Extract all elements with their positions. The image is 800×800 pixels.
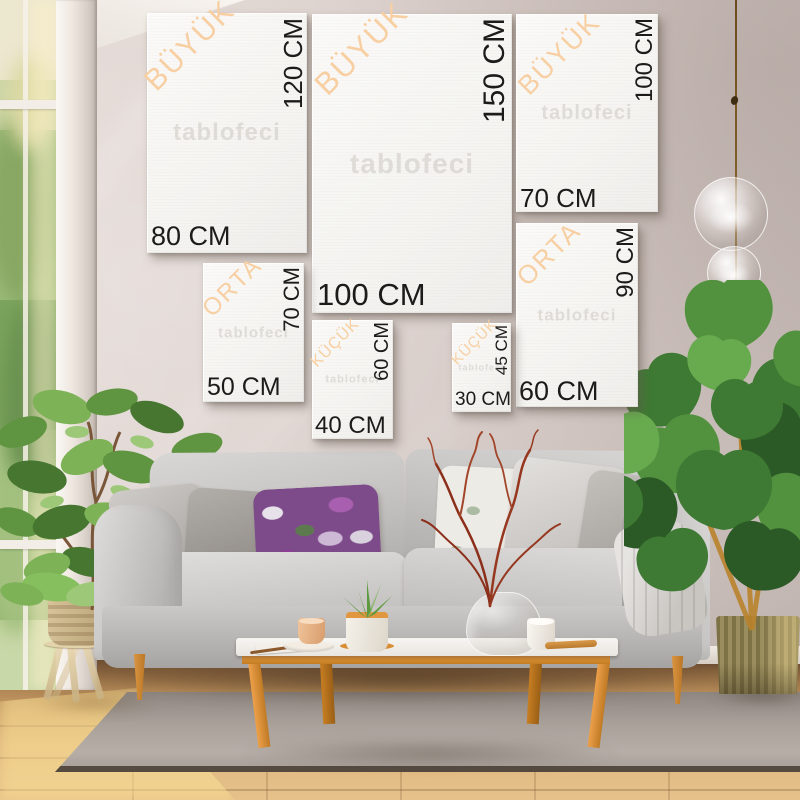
height-dimension-label: 150 CM bbox=[480, 18, 510, 123]
coffee-table bbox=[234, 636, 624, 748]
succulent-leaves bbox=[342, 580, 392, 618]
size-category-label: BÜYÜK bbox=[309, 0, 414, 100]
succulent-plant bbox=[336, 580, 398, 620]
watermark: tablofeci bbox=[538, 307, 617, 324]
width-dimension-label: 100 CM bbox=[317, 279, 426, 310]
table-leg-front-left bbox=[248, 661, 270, 748]
glass-reflection bbox=[707, 200, 755, 235]
table-leg-front-right bbox=[588, 661, 610, 748]
height-dimension-label: 70 CM bbox=[281, 267, 303, 332]
watermark: tablofeci bbox=[541, 103, 632, 123]
watermark: tablofeci bbox=[218, 325, 289, 340]
glass-pendant-large bbox=[694, 177, 768, 251]
table-leg-back-left bbox=[320, 662, 335, 725]
canvas-frame-70x50: ORTA 70 CM 50 CM tablofeci bbox=[203, 263, 304, 402]
width-dimension-label: 60 CM bbox=[519, 378, 599, 405]
size-category-label: KÜÇÜK bbox=[308, 316, 362, 370]
table-apron bbox=[242, 655, 610, 664]
width-dimension-label: 50 CM bbox=[207, 375, 281, 400]
monstera-plant bbox=[624, 280, 800, 640]
size-category-label: ORTA bbox=[512, 217, 585, 290]
watermark: tablofeci bbox=[325, 374, 379, 385]
canvas-frame-45x30: KÜÇÜK 45 CM 30 CM tablofeci bbox=[452, 323, 511, 412]
height-dimension-label: 90 CM bbox=[614, 227, 638, 298]
width-dimension-label: 80 CM bbox=[151, 223, 231, 250]
canvas-frame-120x80: BÜYÜK 120 CM 80 CM tablofeci bbox=[147, 13, 307, 253]
width-dimension-label: 30 CM bbox=[455, 390, 511, 409]
window-mullion bbox=[0, 100, 58, 109]
watermark: tablofeci bbox=[458, 363, 504, 372]
canvas-frame-150x100: BÜYÜK 150 CM 100 CM tablofeci bbox=[312, 14, 512, 313]
watermark: tablofeci bbox=[173, 121, 281, 145]
size-category-label: BÜYÜK bbox=[513, 8, 605, 100]
rug-edge bbox=[55, 766, 800, 772]
canvas-frame-100x70: BÜYÜK 100 CM 70 CM tablofeci bbox=[516, 14, 658, 212]
canvas-frame-90x60: ORTA 90 CM 60 CM tablofeci bbox=[516, 223, 638, 407]
branch-stems bbox=[422, 430, 560, 606]
canvas-frame-60x40: KÜÇÜK 60 CM 40 CM tablofeci bbox=[312, 320, 393, 439]
coffee-cup-left bbox=[298, 618, 325, 644]
size-category-label: ORTA bbox=[199, 253, 267, 321]
width-dimension-label: 40 CM bbox=[315, 414, 386, 438]
size-category-label: BÜYÜK bbox=[139, 0, 240, 97]
monstera-foliage bbox=[624, 280, 800, 630]
height-dimension-label: 120 CM bbox=[280, 18, 306, 109]
living-room-size-guide: BÜYÜK 120 CM 80 CM tablofeci BÜYÜK 150 C… bbox=[0, 0, 800, 800]
width-dimension-label: 70 CM bbox=[520, 185, 597, 211]
watermark: tablofeci bbox=[350, 150, 474, 178]
height-dimension-label: 100 CM bbox=[633, 18, 657, 102]
table-leg-back-right bbox=[527, 662, 542, 725]
red-branches bbox=[408, 428, 568, 608]
